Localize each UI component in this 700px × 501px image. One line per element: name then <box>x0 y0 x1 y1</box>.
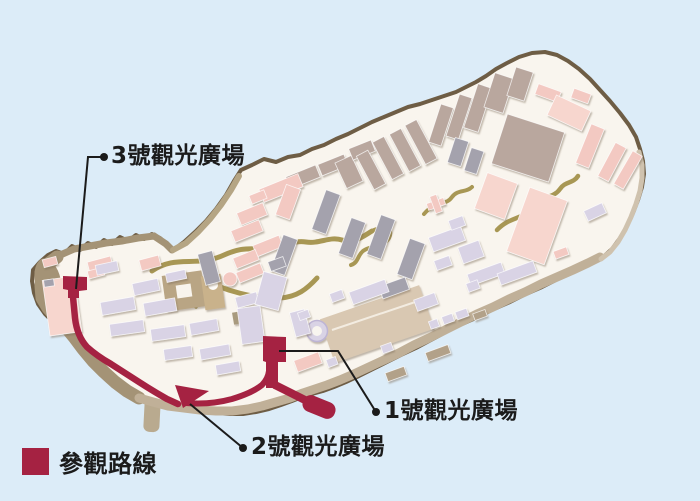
island-tour-map: 3號觀光廣場 1號觀光廣場 2號觀光廣場 參觀路線 <box>0 0 700 501</box>
legend-route-swatch <box>22 448 49 475</box>
breakwater <box>425 345 451 362</box>
round-tank-center <box>312 326 322 336</box>
legend-route-label: 參觀路線 <box>59 444 157 479</box>
building <box>44 279 55 287</box>
dolphin-pier <box>300 393 338 421</box>
route-legend: 參觀路線 <box>22 444 157 479</box>
callout-dot-plaza2 <box>239 444 247 452</box>
label-plaza-2: 2號觀光廣場 <box>251 435 385 460</box>
callout-dot-plaza3 <box>100 153 108 161</box>
label-plaza-3: 3號觀光廣場 <box>111 144 245 169</box>
courtyard-hole <box>176 284 193 299</box>
island-map-svg <box>0 0 700 501</box>
breakwater <box>385 366 407 381</box>
round-building <box>223 272 237 286</box>
label-plaza-1: 1號觀光廣場 <box>384 399 518 424</box>
callout-dot-plaza1 <box>372 408 380 416</box>
building <box>237 306 265 345</box>
